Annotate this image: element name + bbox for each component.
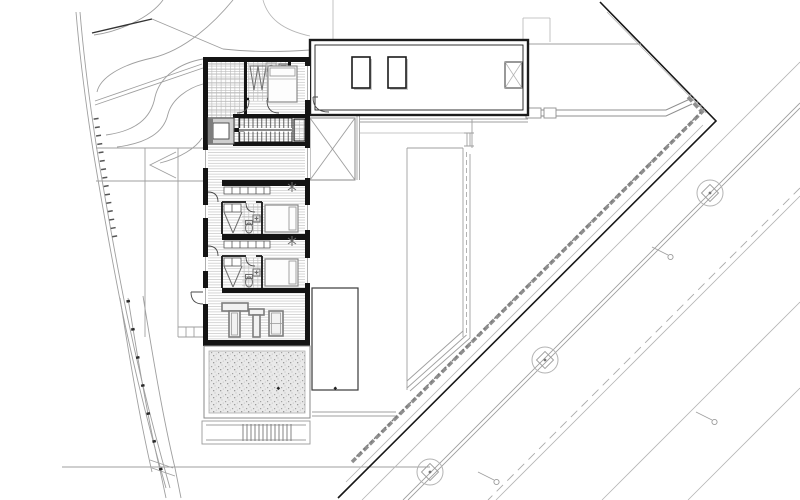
stair-core [208,114,310,146]
garage-skylight [388,57,406,88]
x-deck [310,118,355,180]
closet-compartments [224,187,270,194]
suite2-south-wall [222,288,305,293]
garage [310,40,528,115]
garage-crossed-shaft [505,62,522,88]
street-tree [697,180,723,206]
closet-compartments [224,241,270,248]
north-wall [203,57,310,62]
south-wall [203,340,310,346]
floor-plan-drawing [0,0,800,500]
gravel-field [209,351,305,413]
garage-outer-wall [310,40,528,115]
bedroom-north [268,66,297,102]
bed2 [265,259,298,286]
bed1 [265,205,298,232]
terrace-east-wall [244,62,247,114]
east-wall [305,57,310,346]
bath1-closet [224,204,241,212]
main-building [191,57,310,346]
garage-skylight [352,57,370,88]
fence-gate-post [544,108,556,118]
street-tree [532,347,558,373]
gym-locker [269,311,283,336]
fireplace [208,118,234,144]
stair-north-wall [233,114,310,118]
bath2-closet [224,258,241,266]
stair-shaft [294,119,305,141]
street-tree [417,459,443,485]
garden-steps [202,421,310,444]
stair-south-wall [233,142,310,146]
spa-deck [312,288,358,390]
bed [268,66,297,102]
floor-plan-sheet [0,0,800,500]
